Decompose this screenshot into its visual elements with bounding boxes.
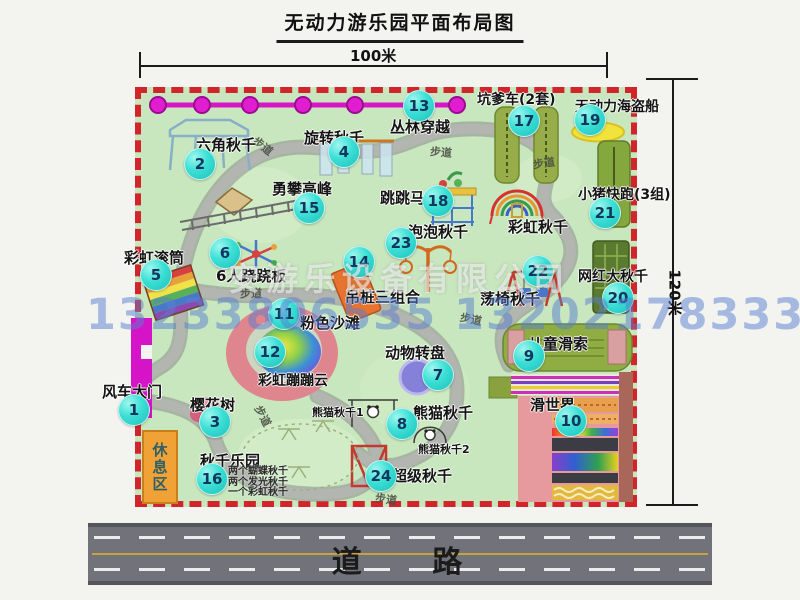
screenshot-canvas: { "title": "无动力游乐园平面布局图", "dims": { "wid…: [0, 0, 800, 600]
attraction-badge-1: 1: [118, 394, 150, 426]
walkway-label: 步道: [374, 490, 398, 509]
attraction-badge-19: 19: [574, 104, 606, 136]
attraction-badge-8: 8: [386, 408, 418, 440]
dimension-tick-right-top: [646, 78, 698, 80]
walkway-label: 步道: [429, 143, 452, 161]
attraction-badge-10: 10: [555, 405, 587, 437]
gate-notch: [141, 345, 152, 359]
attraction-badge-21: 21: [589, 197, 621, 229]
attraction-badge-12: 12: [254, 336, 286, 368]
attraction-label-21: 小猪快跑(3组): [578, 184, 671, 204]
walkway-label: 步道: [532, 154, 556, 173]
rest-area-label: 休息区: [150, 442, 171, 493]
attraction-badge-7: 7: [422, 359, 454, 391]
swing-paradise-notes: 两个蝴蝶秋千 两个发光秋千 一个彩虹秋千: [228, 467, 288, 499]
page-title: 无动力游乐园平面布局图: [276, 8, 523, 43]
attraction-badge-5: 5: [140, 259, 172, 291]
attraction-badge-4: 4: [328, 136, 360, 168]
dimension-tick-right-bottom: [646, 504, 698, 506]
attraction-badge-17: 17: [508, 105, 540, 137]
attraction-badge-18: 18: [422, 185, 454, 217]
attraction-badge-2: 2: [184, 148, 216, 180]
attraction-badge-3: 3: [199, 406, 231, 438]
attraction-label-18: 跳跳马: [380, 187, 425, 208]
rainbow-swing-label: 彩虹秋千: [508, 216, 568, 237]
attraction-badge-9: 9: [513, 340, 545, 372]
attraction-badge-13: 13: [403, 90, 435, 122]
road-label: 道 路: [88, 537, 712, 581]
attraction-badge-16: 16: [196, 463, 228, 495]
rest-area: 休息区: [142, 430, 178, 504]
road: 道 路: [88, 523, 712, 585]
attraction-label-24: 超级秋千: [392, 465, 452, 486]
dimension-tick-top-right: [606, 52, 608, 78]
watermark-phone: 13233806535 13202178333: [86, 290, 800, 340]
attraction-badge-24: 24: [365, 460, 397, 492]
dimension-tick-top-left: [139, 52, 141, 78]
note-line: 一个彩虹秋千: [228, 488, 288, 499]
attraction-badge-15: 15: [293, 192, 325, 224]
panda-swing-1-label: 熊猫秋千1: [312, 404, 364, 420]
attraction-label-8: 熊猫秋千: [413, 402, 473, 423]
attraction-label-23: 泡泡秋千: [408, 221, 468, 242]
attraction-label-12: 彩虹蹦蹦云: [258, 370, 328, 390]
panda-swing-2-label: 熊猫秋千2: [418, 441, 470, 457]
dimension-width-label: 100米: [350, 45, 396, 66]
note-line: 两个蝴蝶秋千: [228, 467, 288, 478]
